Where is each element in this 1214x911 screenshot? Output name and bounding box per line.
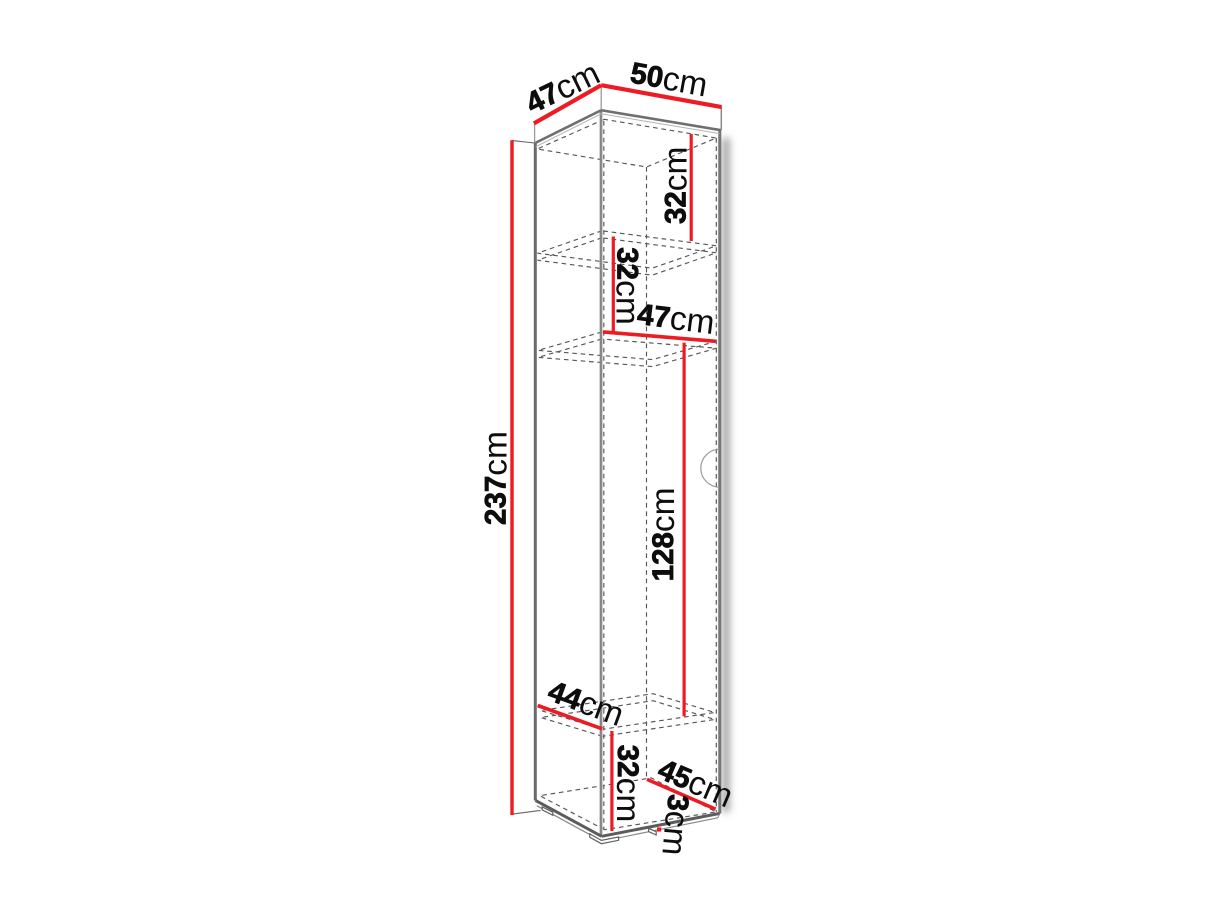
- svg-text:32cm: 32cm: [657, 147, 694, 224]
- svg-text:237cm: 237cm: [477, 431, 514, 525]
- svg-text:128cm: 128cm: [644, 487, 681, 581]
- svg-text:32cm: 32cm: [610, 745, 647, 822]
